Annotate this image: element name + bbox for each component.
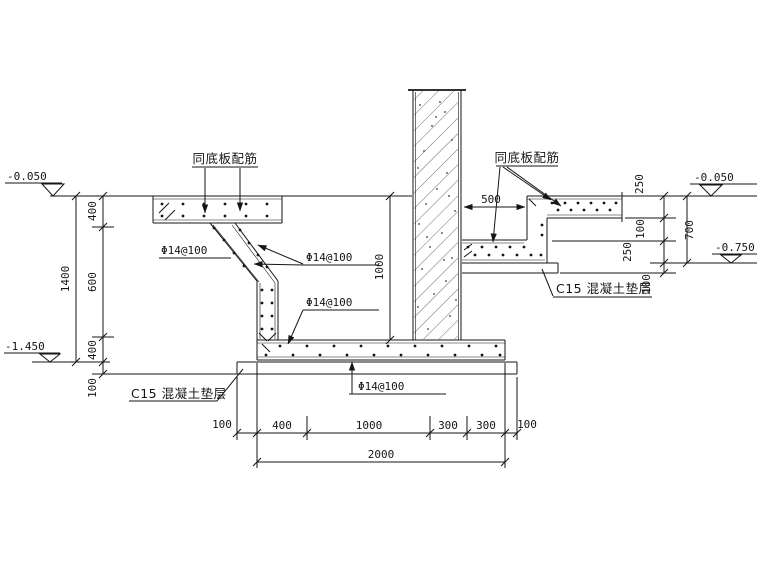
elevation-left-top: -0.050	[7, 170, 47, 183]
right-elevation-markers: -0.050 -0.750	[690, 171, 757, 263]
level-triangle-icon	[40, 354, 60, 362]
dim-bottom-seg-3: 300	[438, 419, 458, 432]
dim-right-seg-3: 250	[621, 242, 634, 262]
dim-right-seg-2: 100	[634, 219, 647, 239]
level-triangle-icon	[700, 185, 722, 196]
note-rebar-left: 同底板配筋	[192, 151, 257, 166]
level-triangle-icon	[42, 184, 64, 196]
dim-left-cushion: 100	[86, 378, 99, 398]
retaining-wall-section	[153, 196, 282, 341]
rebar-hook-mark	[262, 344, 270, 352]
cushion-right	[462, 263, 558, 273]
note-rebar-spec-1: Φ14@100	[161, 244, 207, 257]
elevation-right-bottom: -0.750	[715, 241, 755, 254]
dim-step-offset: 500	[481, 193, 501, 206]
note-rebar-spec-2: Φ14@100	[306, 251, 352, 264]
dimension-chain-right: 250 100 250 100 700	[552, 174, 696, 294]
leader-line	[503, 167, 551, 200]
dim-bottom-seg-1: 400	[272, 419, 292, 432]
dim-left-total: 1400	[59, 266, 72, 293]
left-elevation-markers: -0.050 -1.450	[4, 170, 64, 362]
dim-bottom-seg-2: 1000	[356, 419, 383, 432]
main-wall-section	[408, 90, 466, 340]
leader-line	[507, 167, 561, 206]
note-cushion-right: C15 混凝土垫层	[556, 281, 652, 296]
rebar-bend-mark	[159, 203, 175, 220]
elevation-left-bottom: -1.450	[5, 340, 45, 353]
dim-bottom-seg-4: 300	[476, 419, 496, 432]
dim-right-seg-1: 250	[633, 174, 646, 194]
drawing-sheet: -0.050 -1.450 -0.050 -0.750	[0, 0, 760, 571]
dim-right-total: 700	[683, 220, 696, 240]
dim-left-seg-2: 600	[86, 272, 99, 292]
dim-wall-height: 1000	[373, 254, 386, 281]
note-rebar-spec-3: Φ14@100	[306, 296, 352, 309]
dim-bottom-overhang-right: 100	[517, 418, 537, 431]
rebar-dots	[161, 202, 618, 357]
note-rebar-spec-4: Φ14@100	[358, 380, 404, 393]
note-cushion-left: C15 混凝土垫层	[131, 386, 227, 401]
foundation-detail-drawing: -0.050 -1.450 -0.050 -0.750	[0, 0, 760, 571]
leader-line	[258, 245, 303, 264]
concrete-hatch	[414, 91, 458, 339]
dim-bottom-total: 2000	[368, 448, 395, 461]
level-triangle-icon	[721, 255, 741, 263]
dim-left-seg-3: 400	[86, 340, 99, 360]
leader-line	[288, 310, 303, 344]
rebar-hook-mark	[464, 199, 536, 257]
dim-left-seg-1: 400	[86, 201, 99, 221]
dim-bottom-overhang-left: 100	[212, 418, 232, 431]
elevation-right-top: -0.050	[694, 171, 734, 184]
dimension-chain-bottom: 100 400 1000 300 300 100 2000	[212, 363, 537, 468]
cushion-left	[237, 362, 517, 374]
note-rebar-right: 同底板配筋	[494, 150, 559, 165]
